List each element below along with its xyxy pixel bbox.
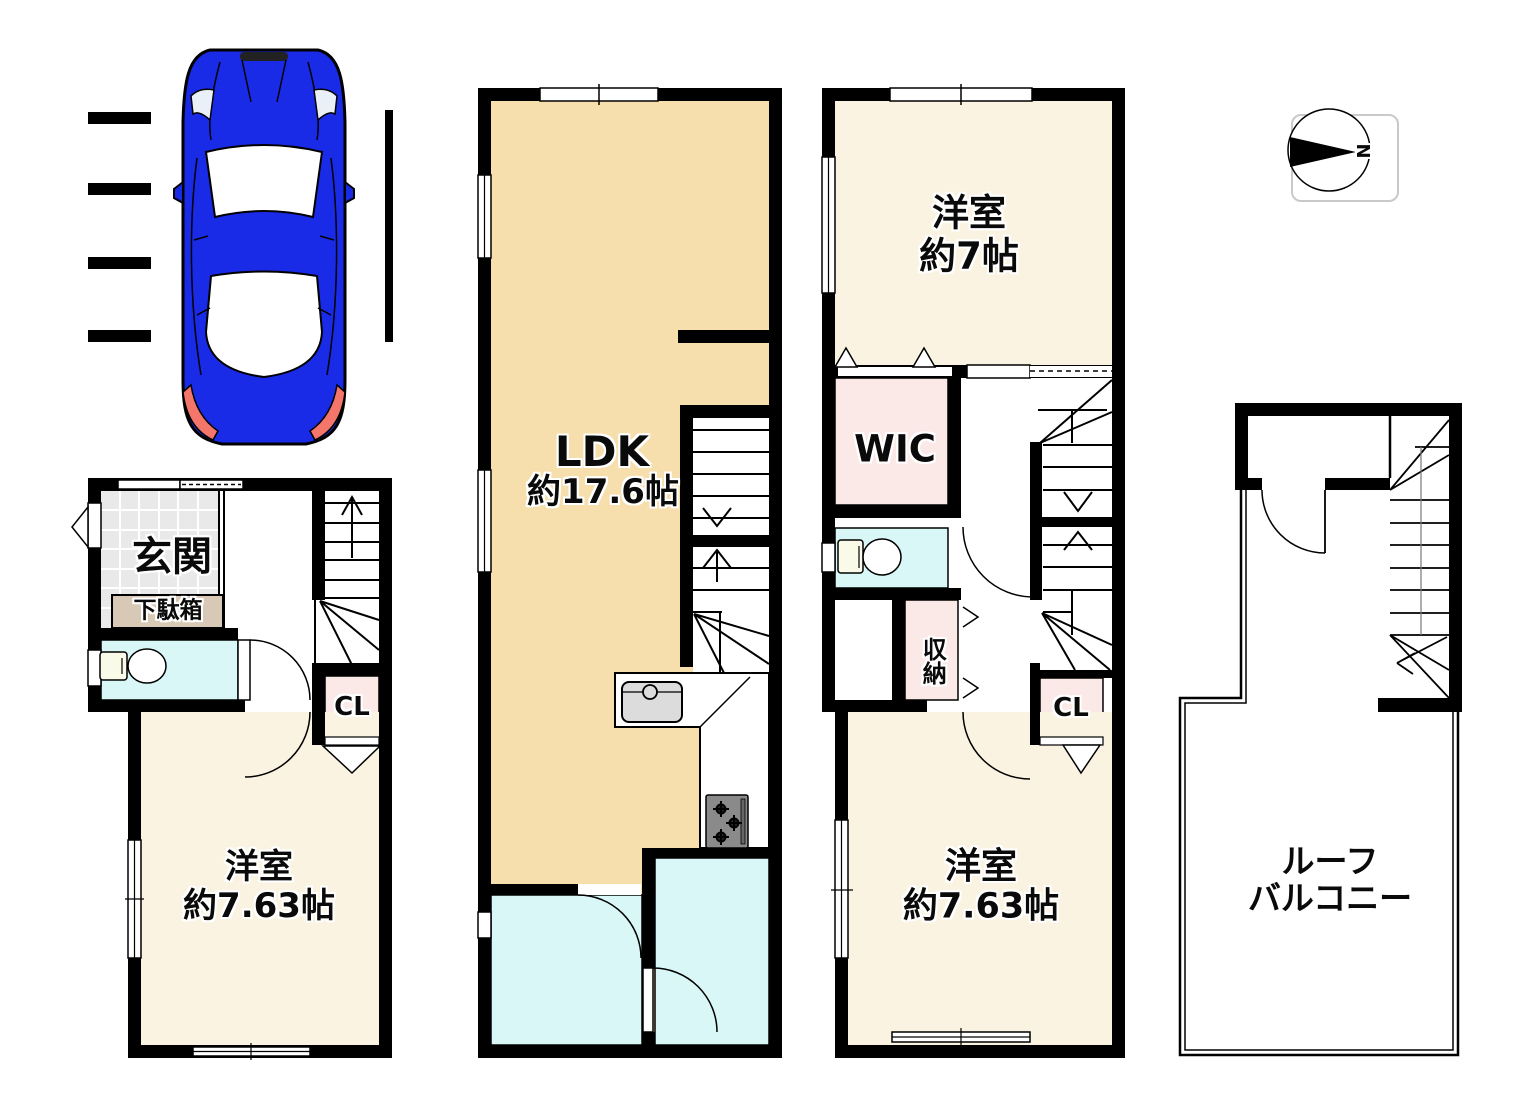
floor3-bedroom7-label: 洋室 [932,195,1006,232]
toilet-icon [100,649,166,683]
sink-icon [622,682,682,722]
floor3-closet-label: CL [1053,695,1089,721]
floor1-bedroom-label: 洋室 [225,850,293,884]
entrance-door [88,503,101,548]
floor2-plan-drawing [460,80,790,1070]
washroom-window [478,912,491,938]
car-icon [174,50,354,444]
hall-door-arc [963,527,1033,597]
bedroom-door-gap [246,701,309,711]
toilet-window [88,650,101,686]
toilet3-icon [838,539,901,575]
shoe-cabinet-label: 下駄箱 [134,600,203,623]
roof-stairs-icon [1390,420,1449,698]
compass-north-label: N [1353,143,1371,158]
wic-door-gap [838,367,952,376]
entrance-label: 玄関 [132,537,212,577]
ldk-size-label: 約17.6帖 [527,475,679,509]
stove-icon [706,795,748,848]
floor1-plan-drawing [70,470,400,1070]
storage-folding-door-1 [963,607,978,627]
compass-icon [1280,100,1390,210]
hall-window [967,365,1030,378]
toilet-door-arc [250,640,310,700]
bathroom [655,858,769,1045]
ldk-label: LDK [555,431,649,473]
roof-plan-drawing [1165,395,1475,1075]
roof-stair-enclosure-walls [1235,403,1462,712]
bathroom-door-leaf [643,968,653,1032]
toilet3-window [822,543,835,572]
storage-label: 収納 [919,637,945,685]
washroom-door-gap [578,884,641,895]
car-mirror-left [174,182,183,203]
balcony-railing [1180,490,1458,1055]
parking-area-drawing [70,40,400,460]
washroom [491,895,642,1045]
roof-door [1262,490,1325,553]
wic-label: WIC [854,431,936,468]
floor1-bedroom-size-label: 約7.63帖 [183,889,335,923]
car-mirror-right [345,182,354,203]
storage-folding-door-2 [963,678,978,698]
bedroom763-door-gap [928,701,1030,711]
floorplan-canvas: N 玄関 下駄箱 CL 洋室 約7.63帖 LDK 約17.6帖 洋室 約7帖 … [0,0,1528,1095]
roof-door-arc [1262,490,1325,553]
floor3-bedroom763-label: 洋室 [945,849,1017,885]
roof-balcony-label-2: バルコニー [1248,882,1412,915]
floor3-bedroom763-size-label: 約7.63帖 [903,890,1059,925]
floor3-bedroom7-size-label: 約7帖 [919,238,1019,275]
entrance-door-swing [72,507,88,547]
roof-balcony-label-1: ルーフ [1281,845,1378,878]
toilet-door-leaf [238,640,250,700]
floor1-closet-label: CL [334,694,370,720]
